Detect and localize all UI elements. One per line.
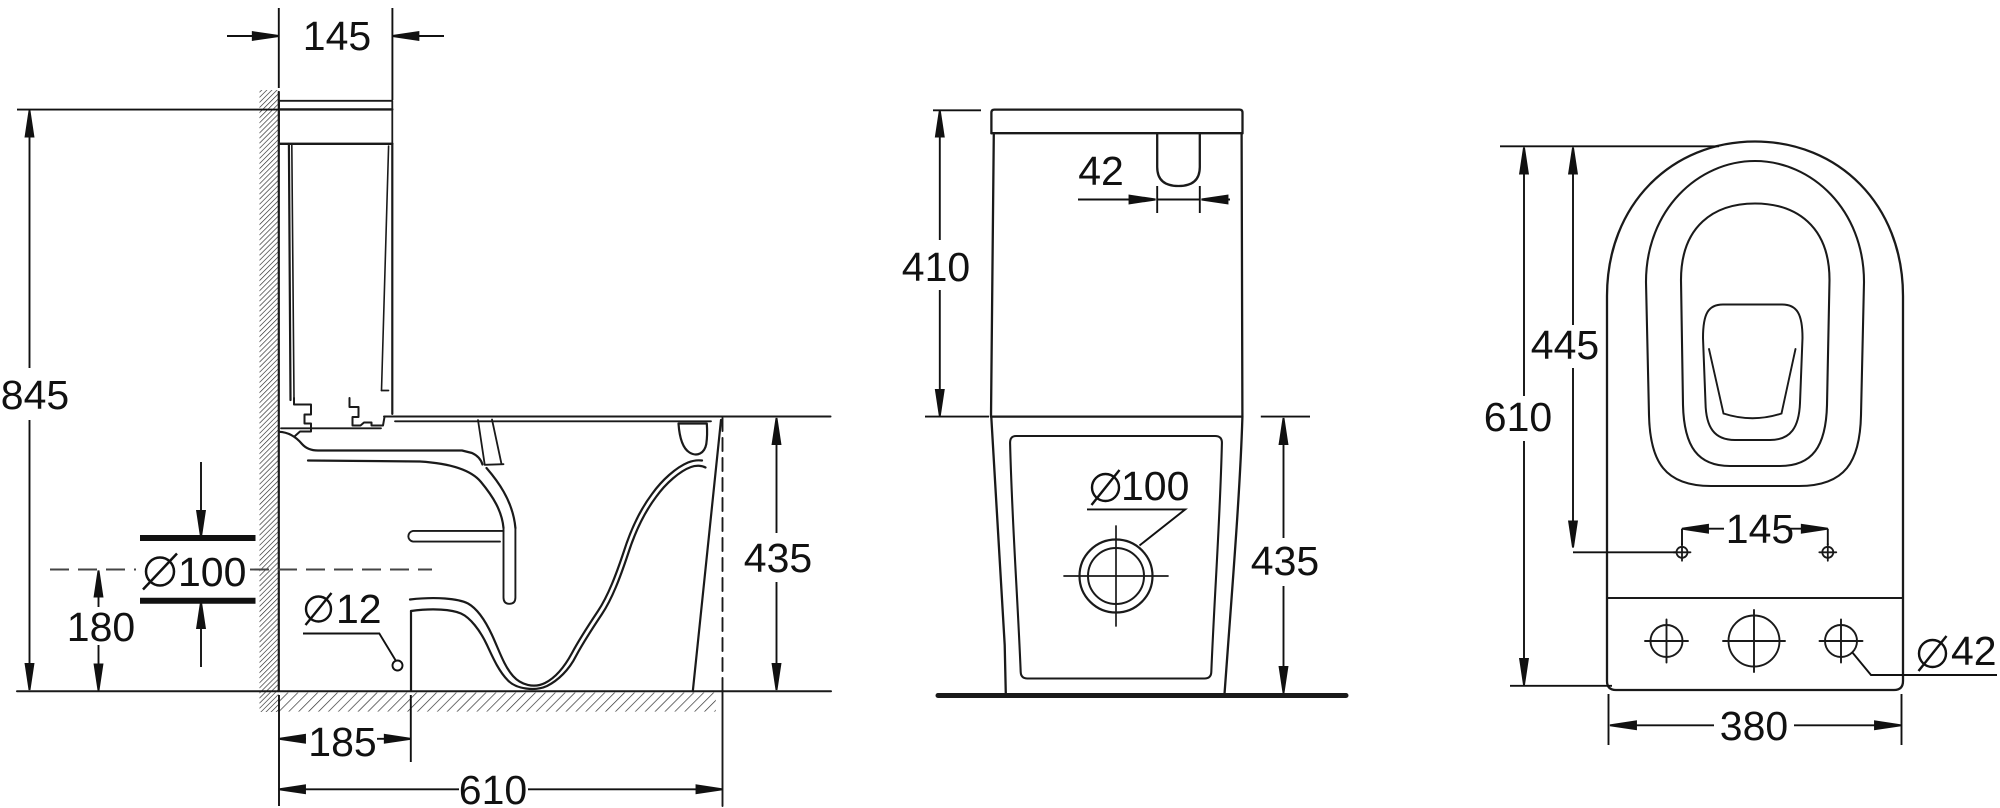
svg-text:445: 445: [1531, 322, 1599, 368]
svg-text:100: 100: [1121, 463, 1189, 509]
svg-text:845: 845: [1, 372, 69, 418]
svg-text:380: 380: [1720, 703, 1788, 749]
svg-text:180: 180: [67, 604, 135, 650]
svg-text:410: 410: [902, 244, 970, 290]
svg-text:145: 145: [303, 13, 371, 59]
svg-text:185: 185: [308, 719, 376, 765]
svg-text:610: 610: [1484, 394, 1552, 440]
svg-text:435: 435: [1251, 538, 1319, 584]
svg-text:100: 100: [178, 549, 246, 595]
svg-text:610: 610: [459, 767, 527, 808]
svg-text:42: 42: [1078, 148, 1124, 194]
svg-text:145: 145: [1726, 506, 1794, 552]
svg-text:12: 12: [336, 586, 382, 632]
svg-text:42: 42: [1951, 628, 1997, 674]
svg-text:435: 435: [744, 535, 812, 581]
